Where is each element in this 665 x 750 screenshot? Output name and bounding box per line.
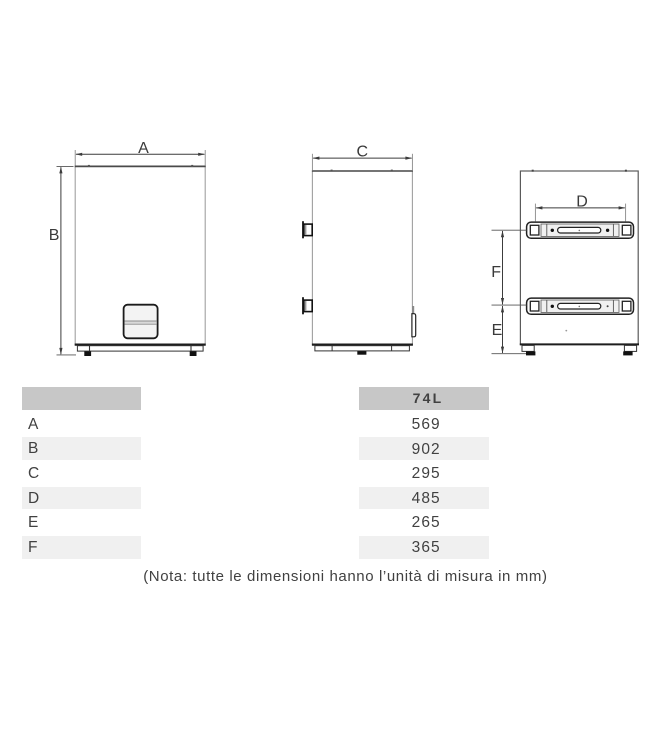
svg-text:F: F <box>491 264 501 281</box>
svg-text:C: C <box>357 144 369 161</box>
svg-text:B: B <box>49 227 60 244</box>
svg-text:D: D <box>576 193 588 210</box>
svg-text:A: A <box>138 140 149 157</box>
svg-text:E: E <box>492 322 503 339</box>
